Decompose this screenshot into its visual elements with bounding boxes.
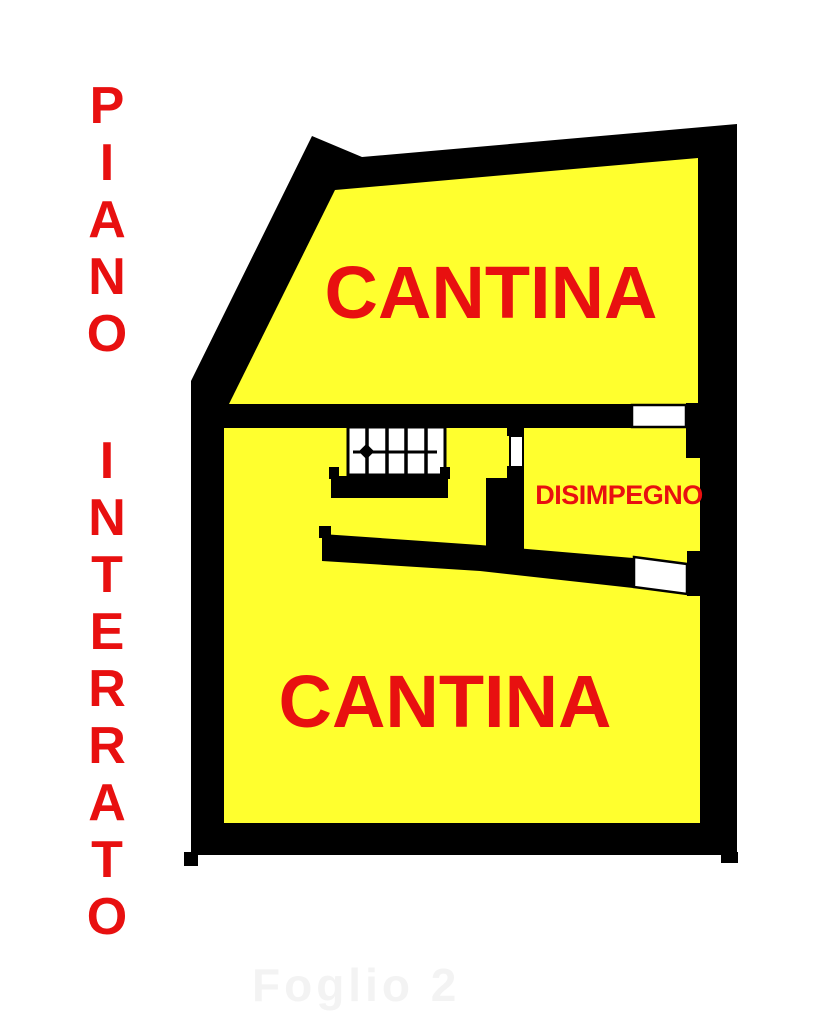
wall-pier-upper-right [686, 403, 704, 458]
wall-foot-right [721, 852, 738, 863]
room-label-cantina-lower: CANTINA [279, 660, 612, 743]
door-jamb-top [507, 424, 524, 436]
floorplan-drawing: CANTINA DISIMPEGNO CANTINA [0, 0, 834, 1024]
room-label-cantina-upper: CANTINA [325, 251, 658, 334]
wall-end-tick [319, 526, 331, 538]
staircase [329, 427, 450, 498]
watermark-foglio: Foglio 2 [252, 958, 460, 1012]
dividing-wall [205, 404, 632, 428]
stair-landing-wall [331, 476, 448, 498]
wall-foot-left [184, 852, 198, 866]
wall-end-tick [329, 467, 339, 479]
door-opening-lower [634, 557, 687, 594]
wall-pier-interior [486, 466, 524, 558]
room-label-disimpegno: DISIMPEGNO [535, 480, 703, 510]
wall-pier-lower-right [687, 551, 704, 596]
door-opening-interior [510, 436, 523, 468]
wall-end-tick [440, 467, 450, 479]
floorplan-page: PIANOINTERRATO [0, 0, 834, 1024]
door-opening-upper [632, 405, 686, 427]
